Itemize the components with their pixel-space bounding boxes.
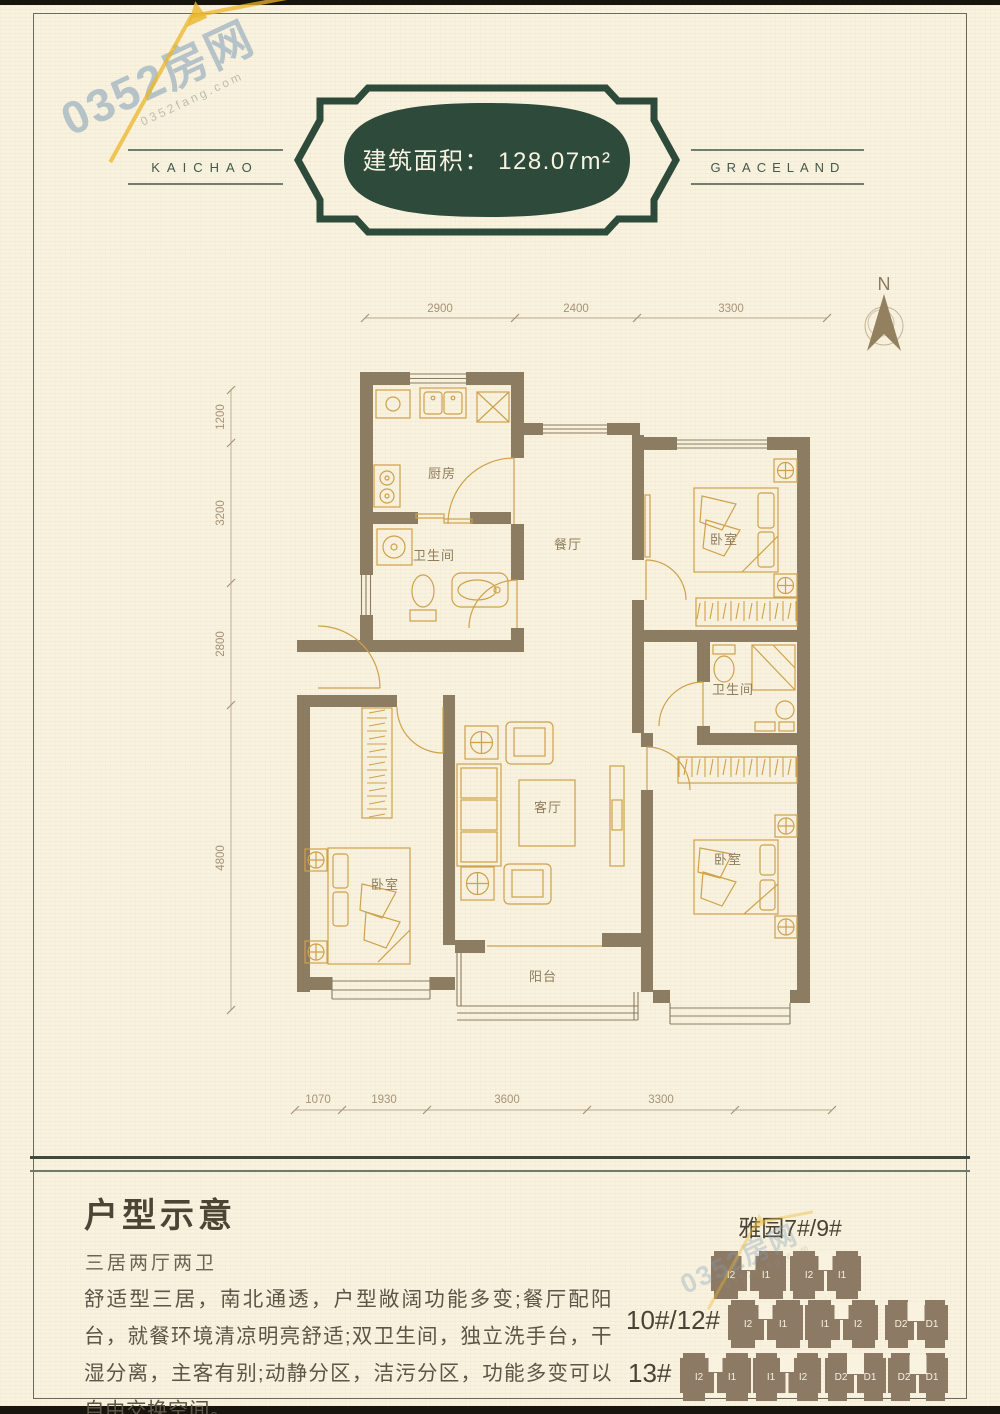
area-badge: 建筑面积： 128.07m² <box>298 88 676 232</box>
room-label-bath-north: 卫生间 <box>413 548 455 563</box>
unit-label: D2 <box>898 1372 911 1383</box>
header-brand-left: KAICHAO <box>128 150 283 184</box>
footer-divider-thin <box>30 1170 970 1172</box>
dim-top-2: 2400 <box>563 303 589 315</box>
unit-label: D1 <box>926 1372 939 1383</box>
unit-label: I1 <box>762 1270 771 1281</box>
unit-label: I2 <box>727 1270 736 1281</box>
footer-divider-thick <box>30 1156 970 1159</box>
building-key-svg: 雅园7#/9# 10#/12# 13# I2 I1 I2 I1 I2 <box>618 1210 986 1410</box>
room-label-bedroom-ne: 卧室 <box>710 532 738 547</box>
unit-label: I1 <box>821 1319 830 1330</box>
bedroom-sw-furniture <box>305 708 410 964</box>
unit-label: I1 <box>728 1372 737 1383</box>
building-block: I1 I2 <box>805 1300 878 1348</box>
area-badge-text: 建筑面积： 128.07m² <box>362 148 611 175</box>
dim-bottom-3: 3600 <box>494 1094 520 1106</box>
dim-bottom-2: 1930 <box>371 1094 397 1106</box>
dim-bottom-4: 3300 <box>648 1094 674 1106</box>
building-block: D2 D1 <box>885 1300 948 1348</box>
unit-label: D2 <box>895 1319 908 1330</box>
unit-label: I1 <box>779 1319 788 1330</box>
north-label: N <box>878 274 891 294</box>
dim-top-1: 2900 <box>427 303 453 315</box>
unit-label: I2 <box>805 1270 814 1281</box>
building-block: I2 I1 <box>680 1353 751 1401</box>
footer-description: 舒适型三居，南北通透，户型敞阔功能多变;餐厅配阳台，就餐环境清凉明亮舒适;双卫生… <box>84 1281 612 1414</box>
building-block: D2 D1 <box>888 1353 948 1401</box>
building-block: I2 I1 <box>790 1251 861 1299</box>
header-brand-right: GRACELAND <box>691 150 864 184</box>
building-group2-label: 10#/12# <box>626 1305 721 1335</box>
unit-label: D1 <box>864 1372 877 1383</box>
footer-title: 户型示意 <box>84 1188 236 1237</box>
building-block: I2 I1 <box>728 1300 803 1348</box>
footer-subtitle: 三居两厅两卫 <box>85 1248 217 1275</box>
dim-left-1: 1200 <box>215 404 227 430</box>
dim-left-4: 4800 <box>215 845 227 871</box>
room-label-kitchen: 厨房 <box>428 466 456 481</box>
room-label-living: 客厅 <box>534 800 562 815</box>
dim-top-3: 3300 <box>718 303 744 315</box>
kitchen-fixtures <box>374 388 509 507</box>
building-block: I1 I2 <box>753 1353 821 1401</box>
north-compass: N <box>865 274 903 351</box>
dim-left-3: 2800 <box>215 631 227 657</box>
unit-label: D2 <box>835 1372 848 1383</box>
north-arrow-icon <box>867 294 901 351</box>
building-group1-label: 雅园7#/9# <box>738 1215 842 1241</box>
room-label-balcony: 阳台 <box>529 969 557 984</box>
unit-label: I2 <box>799 1372 808 1383</box>
dim-bottom-1: 1070 <box>305 1094 331 1106</box>
dim-left-2: 3200 <box>215 500 227 526</box>
unit-label: D1 <box>926 1319 939 1330</box>
floorplan-windows <box>332 374 790 1024</box>
building-key-plans: 雅园7#/9# 10#/12# 13# I2 I1 I2 I1 I2 <box>618 1210 986 1414</box>
unit-label: I2 <box>744 1319 753 1330</box>
bath-north-fixtures <box>377 529 508 621</box>
unit-label: I1 <box>767 1372 776 1383</box>
bedroom-se-furniture <box>678 757 797 938</box>
room-labels: 厨房 卫生间 餐厅 卧室 卫生间 卧室 客厅 卧室 阳台 <box>371 466 754 984</box>
brand-right-text: GRACELAND <box>711 160 846 175</box>
room-label-bedroom-sw: 卧室 <box>371 877 399 892</box>
building-group3-label: 13# <box>628 1358 672 1388</box>
brand-left-text: KAICHAO <box>151 160 259 175</box>
unit-label: I2 <box>695 1372 704 1383</box>
room-label-bedroom-se: 卧室 <box>714 852 742 867</box>
room-label-dining: 餐厅 <box>554 537 582 552</box>
unit-label: I2 <box>854 1319 863 1330</box>
building-block: D2 D1 <box>825 1353 886 1401</box>
brochure-page: KAICHAO GRACELAND 建筑面积： 128.07m² N <box>0 0 1000 1414</box>
room-label-bath-east: 卫生间 <box>712 682 754 697</box>
unit-label: I1 <box>838 1270 847 1281</box>
building-block: I2 I1 <box>711 1251 786 1299</box>
